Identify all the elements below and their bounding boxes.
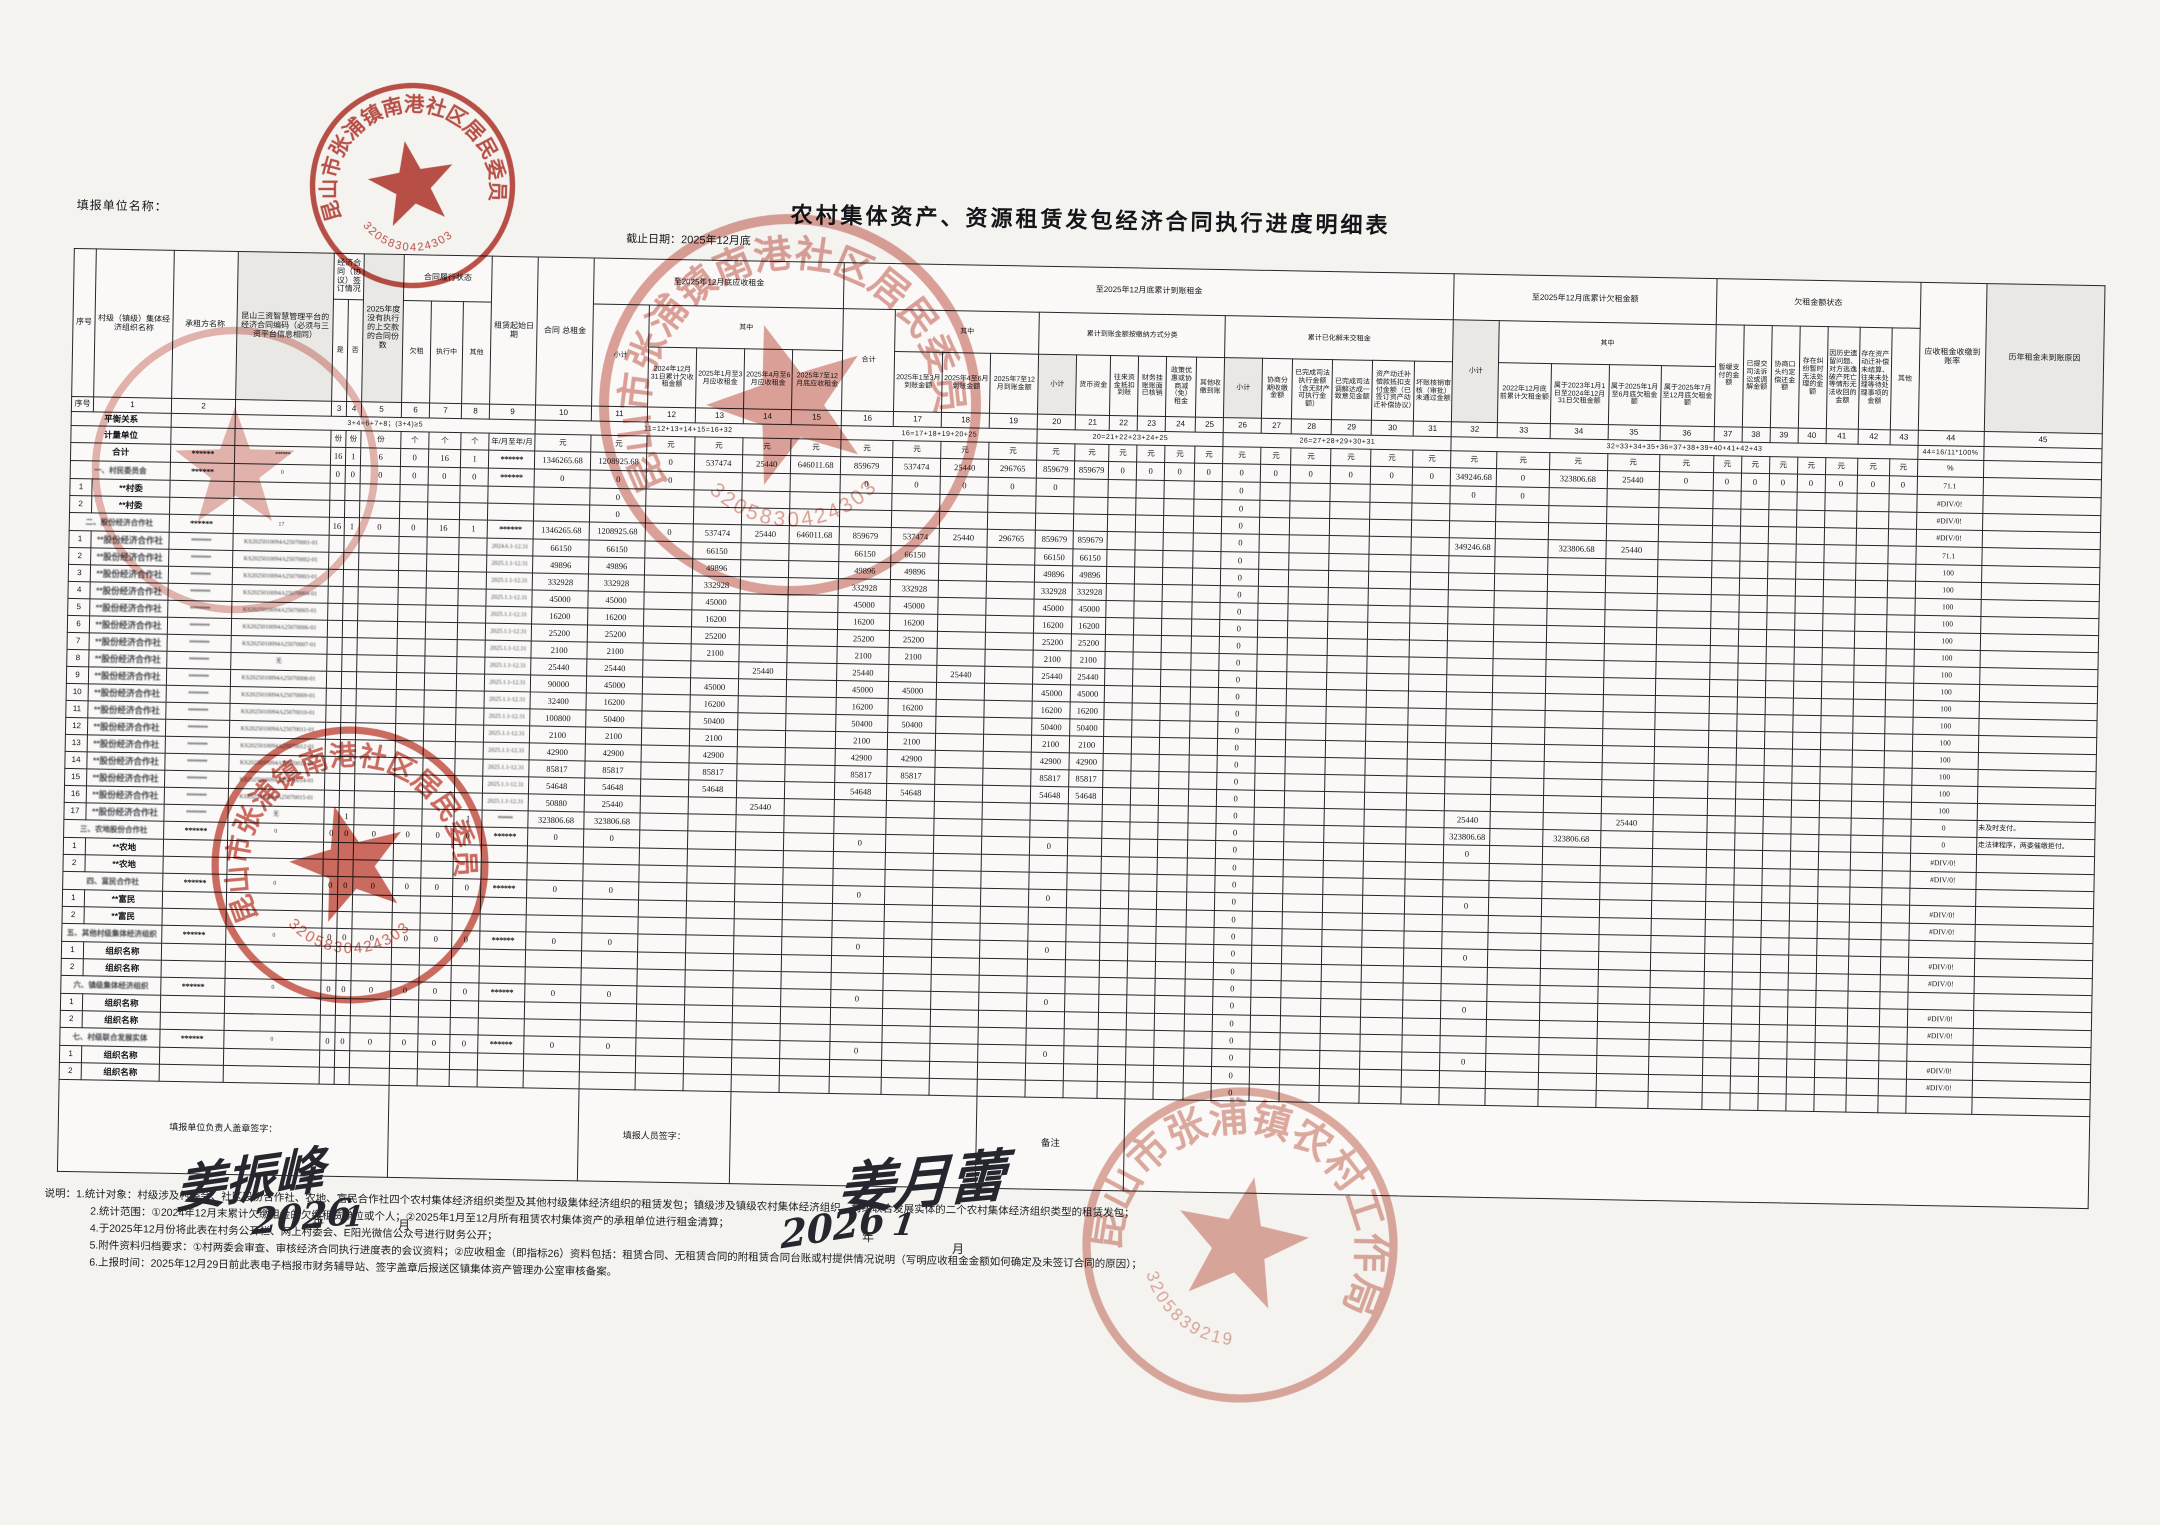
cell: 42900 xyxy=(585,744,641,762)
unit-cell: 元 xyxy=(591,435,647,453)
cell xyxy=(1125,1082,1153,1100)
cell xyxy=(933,870,981,888)
cell xyxy=(1762,869,1790,887)
cell xyxy=(1286,740,1326,758)
cell xyxy=(1604,644,1656,662)
cell: 25440 xyxy=(741,525,789,544)
cell xyxy=(1327,639,1367,657)
cell xyxy=(1759,1007,1787,1026)
cell xyxy=(1729,1093,1757,1111)
cell: ****** xyxy=(480,931,526,950)
balance-formula: 44=16/11*100% xyxy=(1917,445,1983,460)
group-paid-among: 其中 xyxy=(895,310,1040,355)
cell xyxy=(1401,1087,1440,1105)
cell xyxy=(637,969,685,987)
cell xyxy=(1442,967,1488,985)
cell: #DIV/0! xyxy=(1916,494,1982,513)
cell xyxy=(1155,995,1185,1014)
cell: 0 xyxy=(1825,475,1857,494)
cell: 100 xyxy=(1914,615,1980,633)
cell xyxy=(1602,712,1654,730)
cell: 0 xyxy=(1221,569,1259,587)
cell: ******** xyxy=(169,532,233,550)
cell xyxy=(1364,843,1406,862)
cell xyxy=(1545,694,1603,712)
cell xyxy=(1880,940,1908,958)
cell xyxy=(1853,699,1885,717)
cell xyxy=(527,846,583,864)
cell: 0 xyxy=(399,519,427,538)
cell xyxy=(1324,809,1364,827)
cell xyxy=(1740,526,1768,544)
cell xyxy=(783,885,833,904)
cell xyxy=(583,864,639,882)
cell: 16 xyxy=(428,449,460,468)
cell xyxy=(1979,684,2098,703)
cell xyxy=(1790,869,1818,887)
cell xyxy=(1818,835,1850,853)
cell xyxy=(1190,704,1218,722)
cell xyxy=(338,859,353,876)
cell: 0 xyxy=(527,880,583,899)
cell xyxy=(1369,536,1411,555)
column-number: 31 xyxy=(1413,421,1451,437)
cell xyxy=(340,773,355,790)
cell xyxy=(834,800,886,818)
cell: 0 xyxy=(1444,845,1490,864)
cell xyxy=(1260,517,1290,535)
cell xyxy=(1709,697,1737,715)
cell xyxy=(832,904,884,922)
cell xyxy=(449,1070,477,1088)
cell xyxy=(1655,679,1709,697)
cell xyxy=(1606,489,1658,508)
cell xyxy=(1489,916,1541,934)
cell: 66150 xyxy=(1035,548,1073,566)
cell xyxy=(1606,524,1658,542)
cell xyxy=(978,1062,1026,1080)
unit-cell: 元 xyxy=(791,439,841,457)
cell xyxy=(428,502,460,520)
cell: 25440 xyxy=(837,664,889,682)
cell xyxy=(694,472,742,491)
row-label: **股份经济合作社 xyxy=(88,684,166,702)
unit-cell: 元 xyxy=(1291,448,1331,466)
cell xyxy=(1254,824,1284,842)
cell xyxy=(390,1016,418,1034)
cell: 0 xyxy=(451,983,479,1002)
cell: 0 xyxy=(1261,464,1291,483)
row-label: 七、村级联合发展实体 xyxy=(60,1027,160,1047)
cell xyxy=(456,691,484,709)
cell xyxy=(1540,968,1598,986)
cell xyxy=(1598,952,1650,971)
cell xyxy=(1598,935,1650,953)
cell xyxy=(1888,529,1916,547)
cell xyxy=(342,654,357,671)
cell xyxy=(329,535,344,552)
cell xyxy=(423,758,455,776)
cell xyxy=(1447,692,1493,710)
cell: #DIV/0! xyxy=(1916,529,1982,547)
cell xyxy=(1328,622,1368,640)
cell xyxy=(1192,619,1220,637)
cell: 0 xyxy=(1220,586,1258,604)
cell xyxy=(326,705,341,722)
unit-cell: 元 xyxy=(1769,457,1797,475)
cell xyxy=(886,834,934,853)
cell xyxy=(394,808,422,826)
cell xyxy=(1063,1081,1097,1099)
cell xyxy=(1655,662,1709,680)
cell xyxy=(227,857,323,876)
cell xyxy=(1188,840,1216,859)
cell: 25440 xyxy=(937,665,985,683)
cell xyxy=(1411,537,1450,556)
cell xyxy=(1403,1000,1442,1019)
cell xyxy=(160,1012,224,1030)
cell xyxy=(1735,782,1763,800)
cell xyxy=(1280,1050,1320,1069)
cell xyxy=(1163,533,1193,552)
cell xyxy=(1101,856,1129,874)
column-number: 40 xyxy=(1798,428,1826,444)
cell xyxy=(1885,683,1913,701)
cell: 537474 xyxy=(893,458,941,477)
cell xyxy=(1187,875,1215,893)
cell xyxy=(1788,938,1816,956)
row-number: 2 xyxy=(69,547,91,564)
cell xyxy=(1250,1049,1280,1068)
cell: 100 xyxy=(1914,649,1980,667)
cell xyxy=(343,586,358,603)
unit-cell: 元 xyxy=(647,436,695,454)
cell xyxy=(1767,544,1795,563)
cell xyxy=(1851,784,1883,802)
cell xyxy=(1878,1044,1906,1062)
cell xyxy=(1764,749,1792,767)
col-13: 2025年1月至3月应收租金 xyxy=(696,348,745,409)
cell: 0 xyxy=(590,488,646,506)
cell xyxy=(831,972,883,990)
remark-area xyxy=(1124,1099,2090,1209)
cell xyxy=(1367,673,1409,691)
cell: 42900 xyxy=(689,746,737,764)
cell xyxy=(782,903,832,921)
cell xyxy=(981,888,1029,907)
cell: 100 xyxy=(1915,598,1981,616)
cell xyxy=(1758,1041,1786,1059)
cell xyxy=(328,569,343,586)
cell xyxy=(1155,978,1185,996)
cell xyxy=(1983,478,2102,498)
cell xyxy=(980,906,1028,924)
cell: 323806.68 xyxy=(1547,540,1605,559)
cell xyxy=(581,968,637,986)
cell xyxy=(1886,649,1914,667)
cell: 0 xyxy=(428,467,460,486)
cell xyxy=(1791,766,1819,784)
cell xyxy=(1879,1009,1907,1028)
column-number: 11 xyxy=(591,406,647,422)
cell: 50400 xyxy=(836,715,888,733)
cell xyxy=(644,609,692,627)
cell: 1208925.68 xyxy=(590,452,646,471)
cell xyxy=(1766,630,1794,648)
cell xyxy=(1600,848,1652,867)
cell xyxy=(833,869,885,887)
cell xyxy=(326,688,341,705)
cell: 0 xyxy=(339,824,354,842)
cell xyxy=(1255,773,1285,791)
cell xyxy=(159,1047,223,1065)
cell xyxy=(1824,528,1856,546)
cell xyxy=(1157,874,1187,892)
cell xyxy=(686,918,734,936)
cell xyxy=(453,862,481,880)
cell xyxy=(1603,678,1655,696)
cell xyxy=(1321,964,1361,982)
cell xyxy=(1447,658,1493,676)
cell: 0 xyxy=(1215,876,1253,894)
cell xyxy=(1036,513,1074,531)
cell: #DIV/0! xyxy=(1916,512,1982,530)
cell xyxy=(1100,908,1128,926)
cell xyxy=(392,912,420,930)
cell xyxy=(687,849,735,867)
cell: 45000 xyxy=(1070,685,1104,703)
cell xyxy=(226,909,322,928)
cell xyxy=(1887,581,1915,599)
cell: #DIV/0! xyxy=(1907,1009,1973,1028)
cell: 1 xyxy=(459,520,487,539)
cell xyxy=(1329,536,1369,555)
cell xyxy=(1789,903,1817,922)
cell xyxy=(1134,584,1162,602)
cell: 100 xyxy=(1913,700,1979,718)
cell xyxy=(341,671,356,688)
cell xyxy=(1099,994,1127,1013)
cell xyxy=(732,1006,780,1024)
cell xyxy=(1739,561,1767,579)
cell xyxy=(1493,693,1545,711)
cell: 25200 xyxy=(1071,634,1105,652)
cell: 100 xyxy=(1914,632,1980,650)
cell xyxy=(1448,607,1494,625)
cell xyxy=(1817,904,1849,923)
cell xyxy=(1790,834,1818,852)
cell: 16200 xyxy=(1072,617,1106,635)
cell xyxy=(325,722,340,739)
cell: 0 xyxy=(454,827,482,846)
cell xyxy=(1064,1046,1098,1065)
cell xyxy=(226,892,322,911)
cell xyxy=(684,1022,732,1040)
cell xyxy=(935,767,983,785)
column-number: 23 xyxy=(1137,416,1165,432)
cell xyxy=(1193,551,1221,569)
column-number: 38 xyxy=(1742,427,1770,443)
cell xyxy=(1028,907,1066,925)
cell xyxy=(889,664,937,682)
row-number: 2 xyxy=(70,495,92,512)
cell xyxy=(1975,889,2094,908)
cell xyxy=(1882,836,1910,854)
cell: ****** xyxy=(234,445,330,465)
row-number: 5 xyxy=(68,598,90,615)
row-number: 2 xyxy=(60,1010,82,1027)
cell xyxy=(171,427,235,445)
cell xyxy=(1279,1085,1319,1103)
cell: 50400 xyxy=(1032,718,1070,736)
cell: 45000 xyxy=(1072,600,1106,618)
cell xyxy=(985,666,1033,684)
cell xyxy=(324,790,339,807)
cell xyxy=(451,966,479,984)
cell: 49896 xyxy=(1035,565,1073,583)
cell: 0 xyxy=(422,826,454,845)
cell xyxy=(1735,799,1763,817)
cell: 0 xyxy=(1213,996,1251,1015)
cell: 537474 xyxy=(693,524,741,543)
cell xyxy=(335,998,350,1015)
cell xyxy=(354,791,394,809)
cell xyxy=(1487,1020,1539,1038)
cell xyxy=(450,1001,478,1019)
cell xyxy=(396,672,424,690)
cell xyxy=(1283,860,1323,878)
cell xyxy=(319,1067,334,1084)
cell xyxy=(939,563,987,581)
unit-cell: 元 xyxy=(1825,458,1857,476)
cell: 16200 xyxy=(890,614,938,632)
cell: 16200 xyxy=(532,607,588,625)
cell: 0 xyxy=(1212,1031,1250,1049)
cell xyxy=(984,700,1032,718)
cell xyxy=(1882,871,1910,889)
row-number: 1 xyxy=(70,478,92,495)
row-label: 一、村民委员会 xyxy=(70,460,170,480)
cell: ******** xyxy=(165,770,229,788)
cell: 323806.68 xyxy=(1549,470,1607,489)
cell xyxy=(881,1077,929,1095)
cell xyxy=(1411,572,1450,590)
cell xyxy=(980,940,1028,959)
cell: 332928 xyxy=(1072,583,1106,601)
unit-cell: 元 xyxy=(1371,449,1413,467)
unit-cell: 元 xyxy=(1223,447,1261,465)
cell xyxy=(1447,675,1493,693)
col-36: 属于2025年7月至12月底欠租金额 xyxy=(1660,366,1715,427)
col-21: 货币资金 xyxy=(1076,355,1111,416)
cell xyxy=(1732,937,1760,955)
cell xyxy=(934,818,982,836)
cell xyxy=(456,674,484,692)
cell xyxy=(1290,483,1330,502)
cell xyxy=(1189,772,1217,790)
cell xyxy=(1154,1047,1184,1066)
cell xyxy=(419,965,451,983)
row-number: 9 xyxy=(66,666,88,683)
cell: 0 xyxy=(420,930,452,949)
cell: 走法律程序，两委催缴拒付。 xyxy=(1976,837,2095,856)
cell xyxy=(1282,912,1322,930)
cell xyxy=(1796,510,1824,528)
cell xyxy=(832,921,884,939)
cell: 2025.1.1-12.31 xyxy=(482,793,528,811)
cell xyxy=(940,511,988,529)
cell xyxy=(1187,892,1215,911)
cell: 0 xyxy=(1857,475,1889,494)
cell xyxy=(1445,794,1491,812)
cell: 0 xyxy=(1659,472,1713,491)
cell: ******** xyxy=(168,583,232,601)
cell xyxy=(1656,611,1710,629)
group-due-rent: 至2025年12月底应收租金 xyxy=(594,258,845,309)
cell xyxy=(780,1007,830,1025)
cell xyxy=(931,991,979,1010)
cell: 0 xyxy=(1195,463,1223,482)
cell xyxy=(1599,918,1651,936)
cell xyxy=(739,645,787,663)
cell xyxy=(1496,522,1548,540)
cell: 49896 xyxy=(533,556,589,574)
unit-cell: 元 xyxy=(989,442,1037,460)
row-number: 15 xyxy=(65,768,87,785)
cell: 0 xyxy=(1218,722,1256,740)
cell xyxy=(936,733,984,751)
cell: 0 xyxy=(646,453,694,472)
cell xyxy=(1655,696,1709,714)
cell xyxy=(1488,968,1540,986)
cell xyxy=(1820,750,1852,768)
cell xyxy=(986,581,1034,599)
row-label: **股份经济合作社 xyxy=(87,718,165,736)
cell: 16 xyxy=(329,517,344,535)
cell xyxy=(1883,802,1911,820)
cell xyxy=(1412,485,1451,504)
cell xyxy=(327,620,342,637)
cell: 49896 xyxy=(891,563,939,581)
cell: 0 xyxy=(1212,1066,1250,1084)
col-38: 已提交司法诉讼或调解金额 xyxy=(1742,325,1772,427)
cell xyxy=(934,835,982,854)
cell xyxy=(635,1073,683,1091)
cell xyxy=(1164,516,1194,534)
cell: 646011.68 xyxy=(791,456,841,475)
cell xyxy=(734,919,782,937)
cell xyxy=(1978,718,2097,737)
cell xyxy=(1363,878,1405,896)
cell: 45000 xyxy=(692,593,740,611)
cell: 0 xyxy=(323,876,338,894)
cell xyxy=(1108,514,1136,532)
cell xyxy=(1850,818,1882,836)
cell xyxy=(1361,965,1403,983)
cell xyxy=(391,947,419,965)
cell xyxy=(427,554,459,572)
cell xyxy=(344,552,359,569)
cell xyxy=(1881,905,1909,924)
cell xyxy=(1495,574,1547,592)
cell xyxy=(1886,632,1914,650)
cell: 332928 xyxy=(692,576,740,594)
cell xyxy=(580,1003,636,1021)
cell: 0 xyxy=(1221,552,1259,570)
cell xyxy=(399,536,427,554)
cell xyxy=(162,908,226,926)
cell xyxy=(1976,872,2095,891)
